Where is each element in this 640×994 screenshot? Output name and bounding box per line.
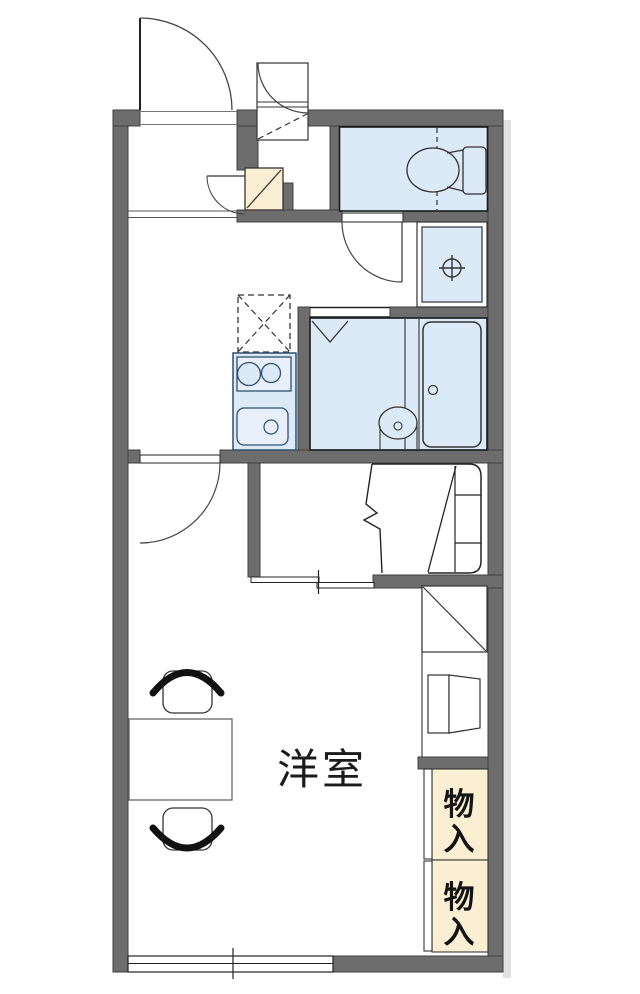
main-room-label: 洋室 xyxy=(277,746,367,793)
wall-bath-west xyxy=(298,307,310,452)
toilet-door-leaf-closed xyxy=(342,213,403,222)
bed-outline xyxy=(372,464,481,573)
wall-closet-stub xyxy=(418,757,488,769)
wall-washroom-band xyxy=(403,210,488,222)
storage-door-lower xyxy=(424,861,432,951)
wall-bath-north xyxy=(390,307,488,318)
wall-mid-b xyxy=(220,450,503,463)
outside-storage xyxy=(257,63,308,140)
storage-lower-label-char1: 物 xyxy=(444,880,475,915)
wall-right xyxy=(488,110,503,972)
washbasin xyxy=(379,407,417,439)
storage-upper-label-char2: 入 xyxy=(444,822,475,857)
entrance-door-swing-arc xyxy=(140,18,232,110)
toilet-door-arc xyxy=(342,222,402,282)
bed-sheet-fold xyxy=(364,464,382,573)
storage-closets: 物 入 物 入 xyxy=(424,769,488,952)
wall-corridor xyxy=(248,463,260,577)
sliding-door-panel-left xyxy=(251,577,319,583)
wall-top-b xyxy=(237,110,257,126)
floor-plan-page: 物 入 物 入 洋室 xyxy=(0,0,640,994)
room-door-leaf xyxy=(140,455,220,463)
wall-left xyxy=(113,110,128,972)
wall-entry-stub xyxy=(237,126,258,170)
floor-plan-drawing: 物 入 物 入 洋室 xyxy=(0,0,640,994)
bathtub xyxy=(423,322,481,447)
wall-mid-a xyxy=(128,450,140,463)
wall-top-a xyxy=(113,110,140,126)
plan-shadow xyxy=(503,120,511,978)
stove-burner-large xyxy=(238,363,261,386)
cabinet-front xyxy=(449,675,480,733)
room-door xyxy=(140,455,220,543)
main-room: 洋室 xyxy=(128,671,367,979)
room-door-arc xyxy=(140,463,220,543)
wall-toilet-west xyxy=(330,126,340,210)
closet-column xyxy=(422,585,487,757)
kitchen-sink xyxy=(237,408,288,445)
washroom xyxy=(417,222,487,307)
storage-door-upper xyxy=(424,769,432,859)
table xyxy=(129,719,232,800)
cabinet-side xyxy=(428,675,449,733)
toilet-tank xyxy=(463,147,486,194)
kitchen xyxy=(233,295,296,450)
bathroom xyxy=(310,308,487,451)
storage-upper-label-char1: 物 xyxy=(444,787,475,822)
storage-lower-label-char2: 入 xyxy=(444,915,475,950)
shoe-cabinet-door-arc xyxy=(207,176,245,214)
sliding-door-panel-right xyxy=(317,583,374,589)
toilet-bowl xyxy=(407,148,459,192)
wall-top-c xyxy=(308,110,503,126)
stove-burner-small xyxy=(262,364,281,383)
wall-bottom xyxy=(333,956,503,972)
wall-hall-band xyxy=(237,210,342,222)
